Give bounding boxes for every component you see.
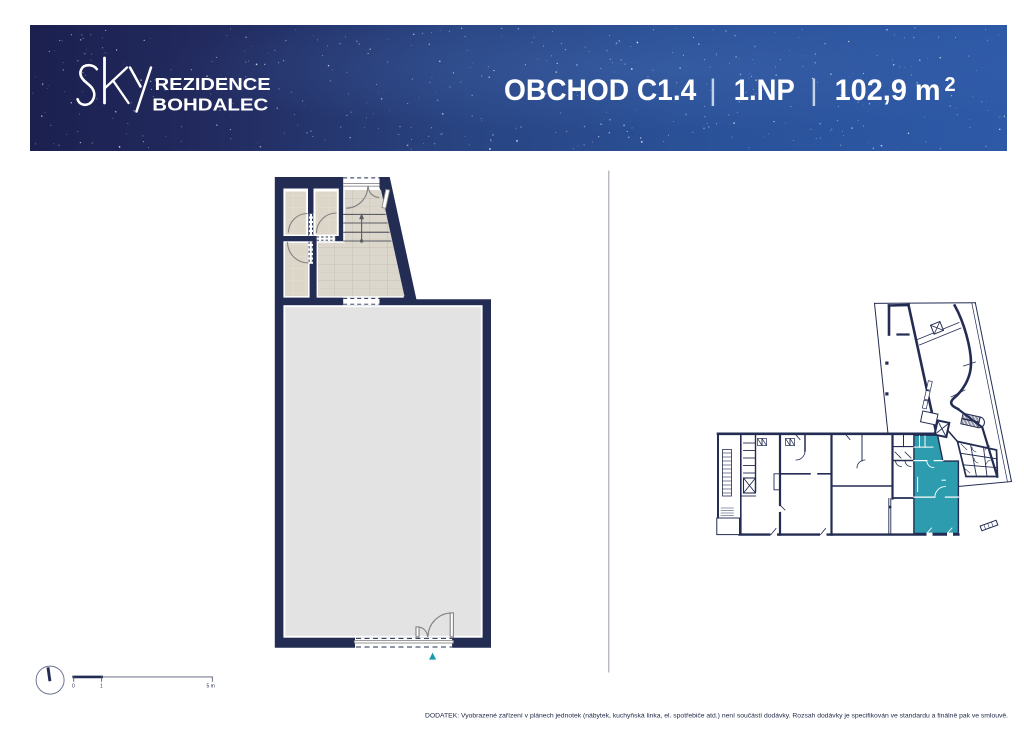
svg-text:DODATEK: Vyobrazené zařízení v: DODATEK: Vyobrazené zařízení v plánech j…: [425, 713, 1008, 720]
svg-text:0: 0: [72, 684, 75, 690]
svg-text:5 m: 5 m: [207, 684, 215, 690]
svg-text:1: 1: [100, 684, 103, 690]
